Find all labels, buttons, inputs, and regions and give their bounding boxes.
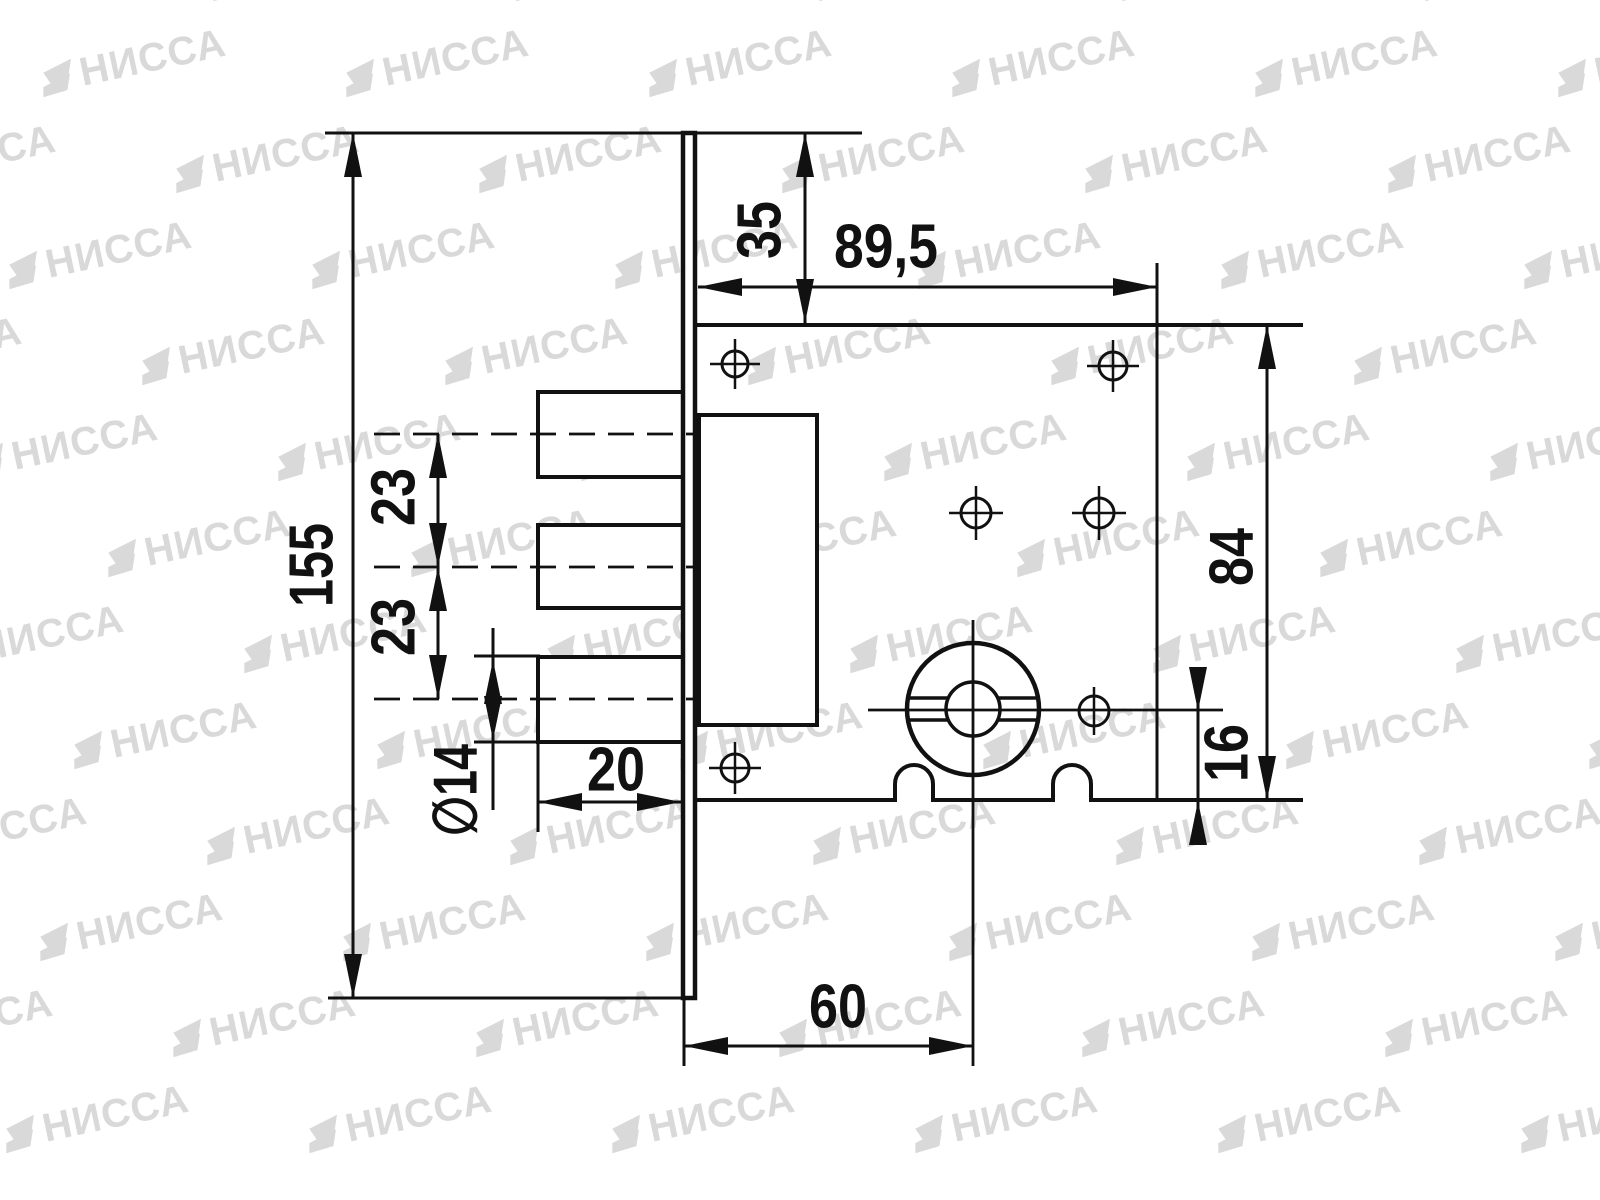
watermark-tile: НИССА	[1482, 405, 1600, 487]
watermark-text: НИССА	[917, 405, 1071, 479]
watermark-tile: НИССА	[811, 0, 1005, 7]
watermark-text: НИССА	[1588, 885, 1600, 959]
watermark-tile: НИССА	[134, 309, 328, 391]
nissa-logo-icon	[34, 923, 75, 962]
watermark-tile: НИССА	[304, 213, 498, 295]
watermark-text: НИССА	[1554, 1077, 1600, 1151]
nissa-logo-icon	[946, 59, 987, 98]
watermark-text: НИССА	[206, 981, 360, 1055]
nissa-logo-icon	[167, 1019, 208, 1058]
watermark-text: НИССА	[1353, 501, 1507, 575]
watermark-tile: НИССА	[641, 21, 835, 103]
watermark-tile: НИССА	[1247, 21, 1441, 103]
watermark-tile: НИССА	[1516, 213, 1600, 295]
watermark-tile: НИССА	[1377, 981, 1571, 1063]
nissa-logo-icon	[606, 1115, 647, 1154]
dimension-label-155: 155	[278, 523, 347, 607]
dimension-label-84: 84	[1198, 528, 1267, 586]
watermark-text: НИССА	[39, 1077, 193, 1151]
dimension-label-16: 16	[1193, 724, 1262, 782]
watermark-tile: НИССА	[1581, 693, 1600, 775]
nissa-logo-icon	[37, 59, 78, 98]
nissa-logo-icon	[201, 827, 242, 866]
watermark-tile: НИССА	[1550, 21, 1600, 103]
nissa-logo-icon	[1348, 347, 1389, 386]
nissa-logo-icon	[170, 155, 211, 194]
watermark-tile: НИССА	[1513, 1077, 1600, 1159]
watermark-tile: НИССА	[1074, 981, 1268, 1063]
watermark-text: НИССА	[379, 21, 533, 95]
nissa-logo-icon	[371, 731, 412, 770]
watermark-tile: НИССА	[771, 981, 965, 1063]
watermark-text: НИССА	[1319, 693, 1473, 767]
watermark-text: НИССА	[1254, 213, 1408, 287]
nissa-logo-icon	[776, 155, 817, 194]
watermark-tile: НИССА	[165, 981, 359, 1063]
watermark-text: НИССА	[509, 981, 663, 1055]
nissa-logo-icon	[773, 1019, 814, 1058]
watermark-text: НИССА	[1084, 309, 1238, 383]
watermark-tile: НИССА	[0, 117, 60, 199]
watermark-tile: НИССА	[1547, 885, 1600, 967]
nissa-logo-icon	[1079, 155, 1120, 194]
watermark-tile: НИССА	[944, 21, 1138, 103]
watermark-text: НИССА	[345, 213, 499, 287]
watermark-tile: НИССА	[876, 405, 1070, 487]
watermark-tile: НИССА	[301, 1077, 495, 1159]
hole-mid-left	[949, 486, 1003, 540]
nissa-logo-icon	[1382, 155, 1423, 194]
nissa-logo-icon	[640, 923, 681, 962]
nissa-logo-icon	[136, 347, 177, 386]
watermark-tile: НИССА	[205, 0, 399, 7]
watermark-tile: НИССА	[842, 597, 1036, 679]
watermark-text: НИССА	[1186, 597, 1340, 671]
watermark-text: НИССА	[8, 405, 162, 479]
nissa-logo-icon	[303, 1115, 344, 1154]
watermark-text: НИССА	[815, 117, 969, 191]
watermark-tile: НИССА	[199, 789, 393, 871]
nissa-logo-icon	[1518, 251, 1559, 290]
nissa-logo-icon	[844, 635, 885, 674]
nissa-logo-icon	[1110, 827, 1151, 866]
nissa-logo-icon	[943, 923, 984, 962]
watermark-tile: НИССА	[975, 693, 1169, 775]
watermark-tile: НИССА	[1448, 597, 1600, 679]
lock-inner-pocket	[699, 415, 817, 725]
watermark-text: НИССА	[0, 981, 57, 1055]
nissa-logo-icon	[1379, 1019, 1420, 1058]
nissa-logo-icon	[1484, 443, 1525, 482]
watermark-text: НИССА	[1251, 1077, 1405, 1151]
nissa-logo-icon	[470, 1019, 511, 1058]
watermark-tile: НИССА	[638, 885, 832, 967]
dimension-label-14: ∅14	[422, 744, 491, 836]
watermark-tile: НИССА	[0, 981, 57, 1063]
watermark-tile: НИССА	[1312, 501, 1506, 583]
watermark-text: НИССА	[1118, 117, 1272, 191]
watermark-tile: НИССА	[907, 1077, 1101, 1159]
watermark-text: НИССА	[1489, 597, 1600, 671]
nissa-logo-icon	[1212, 1115, 1253, 1154]
dimension-label-35: 35	[726, 201, 795, 259]
watermark-text: НИССА	[512, 117, 666, 191]
nissa-logo-icon	[306, 251, 347, 290]
watermark-text: НИССА	[0, 789, 91, 863]
watermark-tile: НИССА	[100, 501, 294, 583]
watermark-text: НИССА	[0, 597, 128, 671]
nissa-logo-icon	[1011, 539, 1052, 578]
nissa-logo-icon	[102, 539, 143, 578]
watermark-text: НИССА	[1288, 21, 1442, 95]
nissa-logo-icon	[207, 0, 248, 1]
nissa-logo-icon	[643, 59, 684, 98]
watermark-text: НИССА	[951, 213, 1105, 287]
drawing-canvas: НИССАНИССАНИССАНИССАНИССАНИССАНИССАНИССА…	[0, 0, 1600, 1200]
watermark-text: НИССА	[1591, 21, 1600, 95]
watermark-tile: НИССА	[1145, 597, 1339, 679]
nissa-logo-icon	[1583, 731, 1600, 770]
watermark-text: НИССА	[0, 117, 60, 191]
nissa-logo-icon	[1419, 0, 1460, 1]
watermark-tile: НИССА	[1213, 213, 1407, 295]
watermark-text: НИССА	[645, 1077, 799, 1151]
watermark-tile: НИССА	[1380, 117, 1574, 199]
watermark-tile: НИССА	[1417, 0, 1600, 7]
nissa-logo-icon	[1246, 923, 1287, 962]
watermark-text: НИССА	[1285, 885, 1439, 959]
watermark-tile: НИССА	[0, 789, 91, 871]
watermark-text: НИССА	[1421, 117, 1575, 191]
nissa-logo-icon	[807, 827, 848, 866]
nissa-logo-icon	[1314, 539, 1355, 578]
nissa-logo-icon	[1549, 923, 1590, 962]
watermark-tile: НИССА	[1244, 885, 1438, 967]
watermark-text: НИССА	[141, 501, 295, 575]
watermark-tile: НИССА	[1346, 309, 1540, 391]
watermark-text: НИССА	[376, 885, 530, 959]
watermark-text: НИССА	[342, 1077, 496, 1151]
nissa-logo-icon	[3, 251, 44, 290]
nissa-logo-icon	[878, 443, 919, 482]
watermark-tile: НИССА	[468, 981, 662, 1063]
watermark-tile: НИССА	[1077, 117, 1271, 199]
watermark-tile: НИССА	[1043, 309, 1237, 391]
dimension-label-20: 20	[587, 736, 645, 805]
watermark-tile: НИССА	[1210, 1077, 1404, 1159]
watermark-tile: НИССА	[0, 0, 97, 7]
nissa-logo-icon	[473, 155, 514, 194]
watermark-tile: НИССА	[335, 885, 529, 967]
watermark-text: НИССА	[1220, 405, 1374, 479]
watermark-text: НИССА	[478, 309, 632, 383]
dimension-label-89-5: 89,5	[834, 213, 938, 282]
watermark-tile: НИССА	[338, 21, 532, 103]
nissa-logo-icon	[0, 443, 10, 482]
watermark-tile: НИССА	[740, 309, 934, 391]
watermark-tile: НИССА	[1278, 693, 1472, 775]
faceplate	[683, 133, 695, 998]
nissa-logo-icon	[1215, 251, 1256, 290]
nissa-logo-icon	[1147, 635, 1188, 674]
nissa-logo-icon	[1280, 731, 1321, 770]
watermark-text: НИССА	[985, 21, 1139, 95]
watermark-tile: НИССА	[1114, 0, 1308, 7]
nissa-logo-icon	[1450, 635, 1491, 674]
watermark-tile: НИССА	[471, 117, 665, 199]
watermark-tile: НИССА	[1411, 789, 1600, 871]
watermark-text: НИССА	[1387, 309, 1541, 383]
watermark-tile: НИССА	[910, 213, 1104, 295]
nissa-logo-icon	[1552, 59, 1593, 98]
nissa-logo-icon	[504, 827, 545, 866]
watermark-text: НИССА	[311, 405, 465, 479]
watermark-tile: НИССА	[32, 885, 226, 967]
nissa-logo-icon	[272, 443, 313, 482]
watermark-text: НИССА	[1115, 981, 1269, 1055]
watermark-text: НИССА	[1452, 789, 1600, 863]
watermark-text: НИССА	[679, 885, 833, 959]
dimension-label-23-lower: 23	[360, 598, 429, 656]
watermark-tile: НИССА	[0, 1077, 193, 1159]
nissa-logo-icon	[1515, 1115, 1556, 1154]
watermark-text: НИССА	[1418, 981, 1572, 1055]
technical-drawing: НИССАНИССАНИССАНИССАНИССАНИССАНИССАНИССА…	[0, 0, 1600, 1200]
watermark-text: НИССА	[948, 1077, 1102, 1151]
nissa-logo-icon	[340, 59, 381, 98]
dimension-label-60: 60	[809, 973, 867, 1042]
nissa-logo-icon	[439, 347, 480, 386]
nissa-logo-icon	[813, 0, 854, 1]
watermark-text: НИССА	[0, 309, 26, 383]
nissa-logo-icon	[1116, 0, 1157, 1]
watermark-text: НИССА	[73, 885, 227, 959]
watermark-tile: НИССА	[604, 1077, 798, 1159]
watermark-tile: НИССА	[35, 21, 229, 103]
nissa-logo-icon	[1413, 827, 1454, 866]
watermark-tile: НИССА	[1, 213, 195, 295]
watermark-tile: НИССА	[1179, 405, 1373, 487]
watermark-text: НИССА	[1557, 213, 1600, 287]
watermark-text: НИССА	[209, 117, 363, 191]
watermark-text: НИССА	[240, 789, 394, 863]
watermark-tile: НИССА	[508, 0, 702, 7]
nissa-logo-icon	[337, 923, 378, 962]
watermark-tile: НИССА	[0, 597, 128, 679]
nissa-logo-icon	[609, 251, 650, 290]
watermark-text: НИССА	[982, 885, 1136, 959]
watermark-tile: НИССА	[0, 405, 162, 487]
nissa-logo-icon	[238, 635, 279, 674]
watermark-text: НИССА	[107, 693, 261, 767]
nissa-logo-icon	[1045, 347, 1086, 386]
watermark-text: НИССА	[42, 213, 196, 287]
watermark-tile: НИССА	[941, 885, 1135, 967]
watermark-tile: НИССА	[437, 309, 631, 391]
watermark-tile: НИССА	[168, 117, 362, 199]
watermark-tile: НИССА	[66, 693, 260, 775]
nissa-logo-icon	[68, 731, 109, 770]
dimension-label-23-upper: 23	[360, 468, 429, 526]
watermark-text: НИССА	[1523, 405, 1600, 479]
watermark-text: НИССА	[682, 21, 836, 95]
nissa-logo-icon	[1249, 59, 1290, 98]
nissa-logo-icon	[0, 1115, 41, 1154]
nissa-logo-icon	[909, 1115, 950, 1154]
watermark-text: НИССА	[76, 21, 230, 95]
nissa-logo-icon	[1181, 443, 1222, 482]
nissa-logo-icon	[1076, 1019, 1117, 1058]
watermark-text: НИССА	[175, 309, 329, 383]
watermark-tile: НИССА	[0, 309, 26, 391]
nissa-logo-icon	[510, 0, 551, 1]
